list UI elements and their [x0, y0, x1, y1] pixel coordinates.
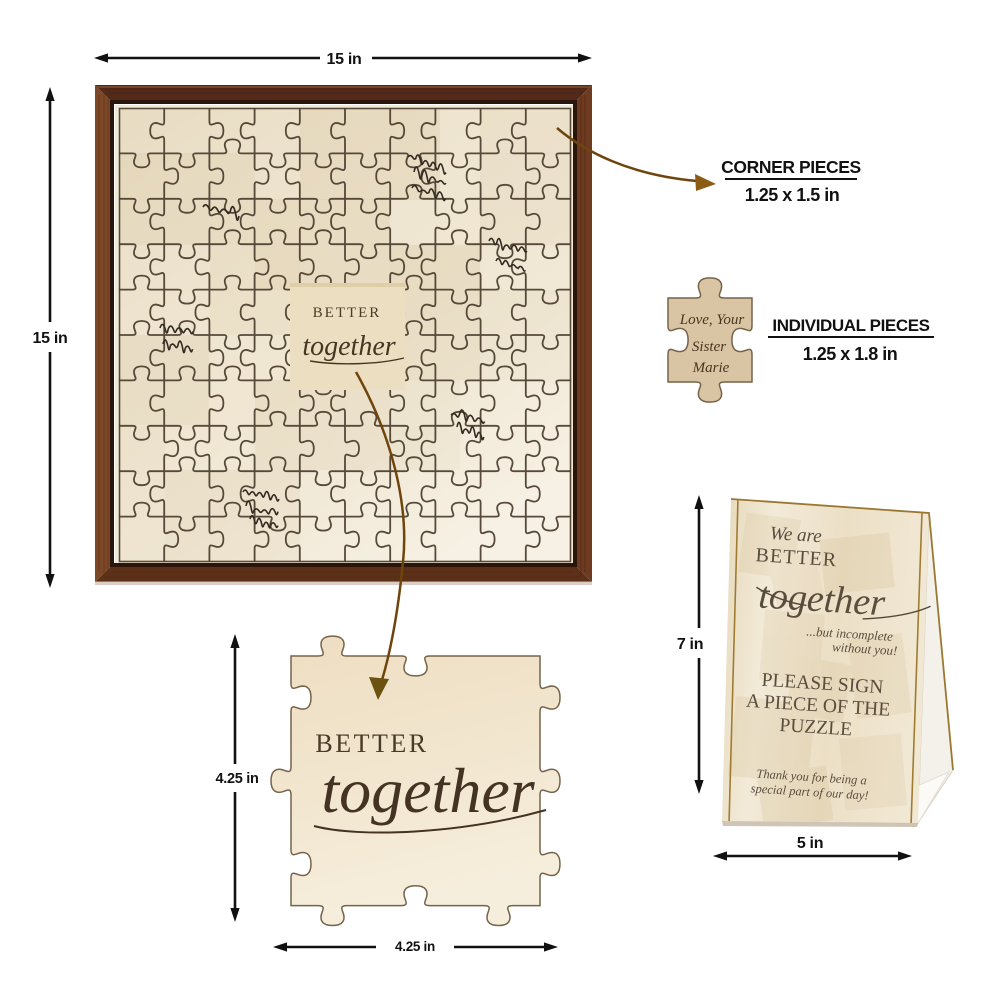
- svg-text:15 in: 15 in: [327, 51, 362, 68]
- svg-text:1.25 x 1.5 in: 1.25 x 1.5 in: [745, 185, 840, 205]
- svg-text:1.25 x 1.8 in: 1.25 x 1.8 in: [803, 344, 898, 364]
- svg-text:together: together: [321, 755, 535, 826]
- svg-text:4.25 in: 4.25 in: [395, 939, 435, 954]
- svg-text:BETTER: BETTER: [315, 729, 428, 758]
- svg-text:INDIVIDUAL PIECES: INDIVIDUAL PIECES: [772, 316, 929, 335]
- svg-text:4.25 in: 4.25 in: [215, 771, 258, 787]
- svg-text:together: together: [757, 574, 886, 624]
- svg-text:15 in: 15 in: [33, 330, 68, 347]
- svg-text:7 in: 7 in: [677, 636, 703, 653]
- svg-text:together: together: [302, 331, 395, 362]
- svg-text:CORNER PIECES: CORNER PIECES: [721, 157, 861, 177]
- svg-text:We are: We are: [769, 523, 822, 547]
- svg-text:BETTER: BETTER: [313, 305, 382, 321]
- svg-text:Sister: Sister: [692, 339, 726, 355]
- svg-text:5 in: 5 in: [797, 835, 823, 852]
- svg-text:Marie: Marie: [692, 360, 730, 376]
- svg-text:Love, Your: Love, Your: [679, 312, 745, 328]
